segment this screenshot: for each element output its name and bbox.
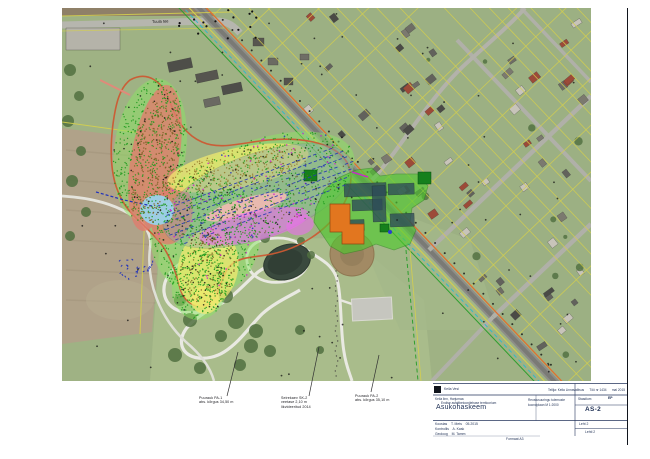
titleblock-footer-line3: Geoloog M. Tamm (435, 432, 465, 436)
titleblock-mid-line1: Reostusuuringu tulemuste (528, 398, 572, 402)
map-annotation-2: Seirekaev SK-2 veetase 2,10 m likvideeri… (281, 396, 343, 409)
annotation-line: abs. kõrgus 34,50 m (199, 400, 257, 404)
annotation-line: likvideeritud 2014 (281, 405, 343, 409)
titleblock-format: Formaat A3 (506, 437, 524, 441)
titleblock-header-info: Tellija: Keila Linnavalitsus Töö nr 1434… (470, 388, 625, 392)
drawing-page: Tuula tee Puurauk PA-1 abs. kõrgus 34,50… (0, 0, 650, 459)
road-label: Tuula tee (152, 18, 169, 24)
titleblock-sheets: Lehti 2 (585, 430, 595, 434)
map-annotation-3: Puurauk PA-2 abs. kõrgus 35,10 m (355, 394, 413, 403)
titleblock-footer-line1: Koostas T. Mets 05.2015 (435, 422, 478, 426)
titleblock-title: Asukohaskeem (436, 404, 486, 411)
company-logo-icon (434, 386, 441, 393)
titleblock-drawing-number: AS-2 (585, 406, 601, 413)
map-annotation-1: Puurauk PA-1 abs. kõrgus 34,50 m (199, 396, 257, 405)
titleblock-sheet: Leht 2 (579, 422, 588, 426)
titleblock-company: Keila Vesi (444, 387, 459, 391)
titleblock-mid-line2: koondplaan M 1:2000 (528, 403, 572, 407)
annotation-line: abs. kõrgus 35,10 m (355, 398, 413, 402)
titleblock-stage-label: Staadium (578, 397, 591, 401)
titleblock-stage-value: EP (608, 396, 613, 400)
titleblock-footer-line2: Kontrollis A. Kask (435, 427, 464, 431)
